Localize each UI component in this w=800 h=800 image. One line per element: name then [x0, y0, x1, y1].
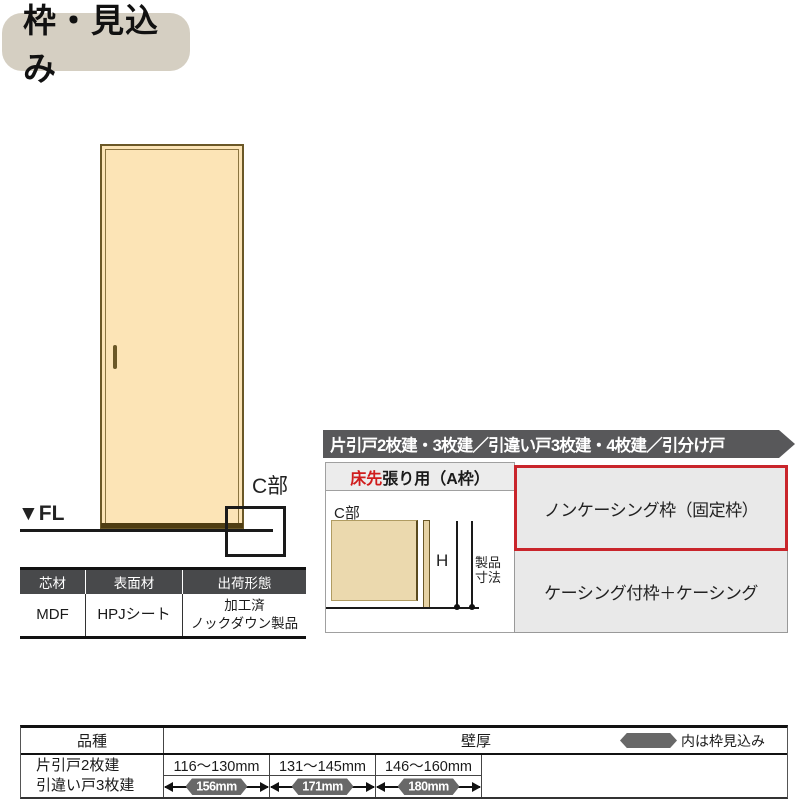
floor-level-label: ▼FL	[18, 502, 64, 526]
frame-depth-cell: 156mm	[164, 776, 269, 797]
header-surface-material: 表面材	[86, 570, 183, 594]
frame-depth-badge: 171mm	[292, 778, 354, 795]
arrow-left-icon	[376, 782, 385, 792]
surface-material-value: HPJシート	[86, 594, 183, 636]
wall-range-value: 116〜130mm	[164, 755, 269, 776]
materials-table: 芯材 表面材 出荷形態 MDF HPJシート 加工済 ノックダウン製品	[20, 567, 306, 639]
c-section-label: C部	[252, 470, 288, 500]
floor-type-red-part: 床先	[350, 465, 382, 489]
header-core-material: 芯材	[20, 570, 86, 594]
legend-hexagon-icon	[620, 733, 677, 748]
legend-text: 内は枠見込み	[681, 731, 765, 751]
header-product-type: 品種	[21, 728, 164, 753]
dimension-line-h	[456, 521, 458, 608]
wall-thickness-column-2: 131〜145mm 171mm	[270, 755, 376, 797]
spec-table-header-row: 品種 壁厚 内は枠見込み	[21, 728, 787, 755]
arrow-right-icon	[472, 782, 481, 792]
wall-range-value: 146〜160mm	[376, 755, 481, 776]
materials-table-data-row: MDF HPJシート 加工済 ノックダウン製品	[20, 594, 306, 636]
product-type-cell: 片引戸2枚建 引違い戸3枚建	[21, 755, 164, 797]
door-type-header-bar: 片引戸2枚建・3枚建／引違い戸3枚建・4枚建／引分け戸	[323, 430, 795, 458]
empty-cell	[482, 755, 787, 797]
shipping-form-value: 加工済 ノックダウン製品	[183, 594, 306, 636]
floor-type-rest-part: 張り用（A枠）	[382, 465, 490, 489]
height-dimension-label: H	[436, 551, 448, 571]
frame-depth-cell: 180mm	[376, 776, 481, 797]
header-wall-thickness: 壁厚	[461, 728, 491, 753]
diagram-wall-section	[331, 520, 418, 601]
floor-type-label: 床先張り用（A枠）	[326, 463, 514, 491]
dimension-endpoint-dot	[469, 604, 475, 610]
frame-depth-cell: 171mm	[270, 776, 375, 797]
frame-depth-badge: 180mm	[398, 778, 460, 795]
dimension-endpoint-dot	[454, 604, 460, 610]
page-title: 枠・見込み	[2, 0, 190, 90]
wall-thickness-column-3: 146〜160mm 180mm	[376, 755, 482, 797]
arrow-right-icon	[260, 782, 269, 792]
spec-table-data-row: 片引戸2枚建 引違い戸3枚建 116〜130mm 156mm 131〜145mm…	[21, 755, 787, 797]
frame-depth-legend: 内は枠見込み	[620, 728, 765, 753]
arrow-left-icon	[270, 782, 279, 792]
door-illustration	[100, 144, 244, 530]
door-type-header-text: 片引戸2枚建・3枚建／引違い戸3枚建・4枚建／引分け戸	[323, 432, 725, 456]
option-noncasing-frame[interactable]: ノンケーシング枠（固定枠）	[514, 465, 788, 551]
option-noncasing-label: ノンケーシング枠（固定枠）	[544, 496, 758, 521]
wall-thickness-table: 品種 壁厚 内は枠見込み 片引戸2枚建 引違い戸3枚建 116〜130mm 15…	[20, 725, 788, 799]
core-material-value: MDF	[20, 594, 86, 636]
option-casing-frame[interactable]: ケーシング付枠＋ケーシング	[514, 551, 788, 633]
page-title-badge: 枠・見込み	[2, 13, 190, 71]
a-frame-panel: 床先張り用（A枠） C部 H 製品 寸法	[325, 462, 515, 633]
frame-depth-badge: 156mm	[186, 778, 248, 795]
wall-range-value: 131〜145mm	[270, 755, 375, 776]
option-casing-label: ケーシング付枠＋ケーシング	[544, 579, 758, 604]
product-dimension-label: 製品 寸法	[475, 555, 501, 585]
dimension-line-product	[471, 521, 473, 608]
wall-thickness-column-1: 116〜130mm 156mm	[164, 755, 270, 797]
door-handle	[113, 345, 117, 369]
diagram-frame-member	[423, 520, 430, 609]
header-shipping-form: 出荷形態	[183, 570, 306, 594]
c-section-highlight-box	[225, 506, 286, 557]
arrow-left-icon	[164, 782, 173, 792]
door-panel-inner-line	[105, 149, 239, 523]
door-bottom-edge	[101, 523, 243, 528]
materials-table-header-row: 芯材 表面材 出荷形態	[20, 570, 306, 594]
arrow-right-icon	[366, 782, 375, 792]
